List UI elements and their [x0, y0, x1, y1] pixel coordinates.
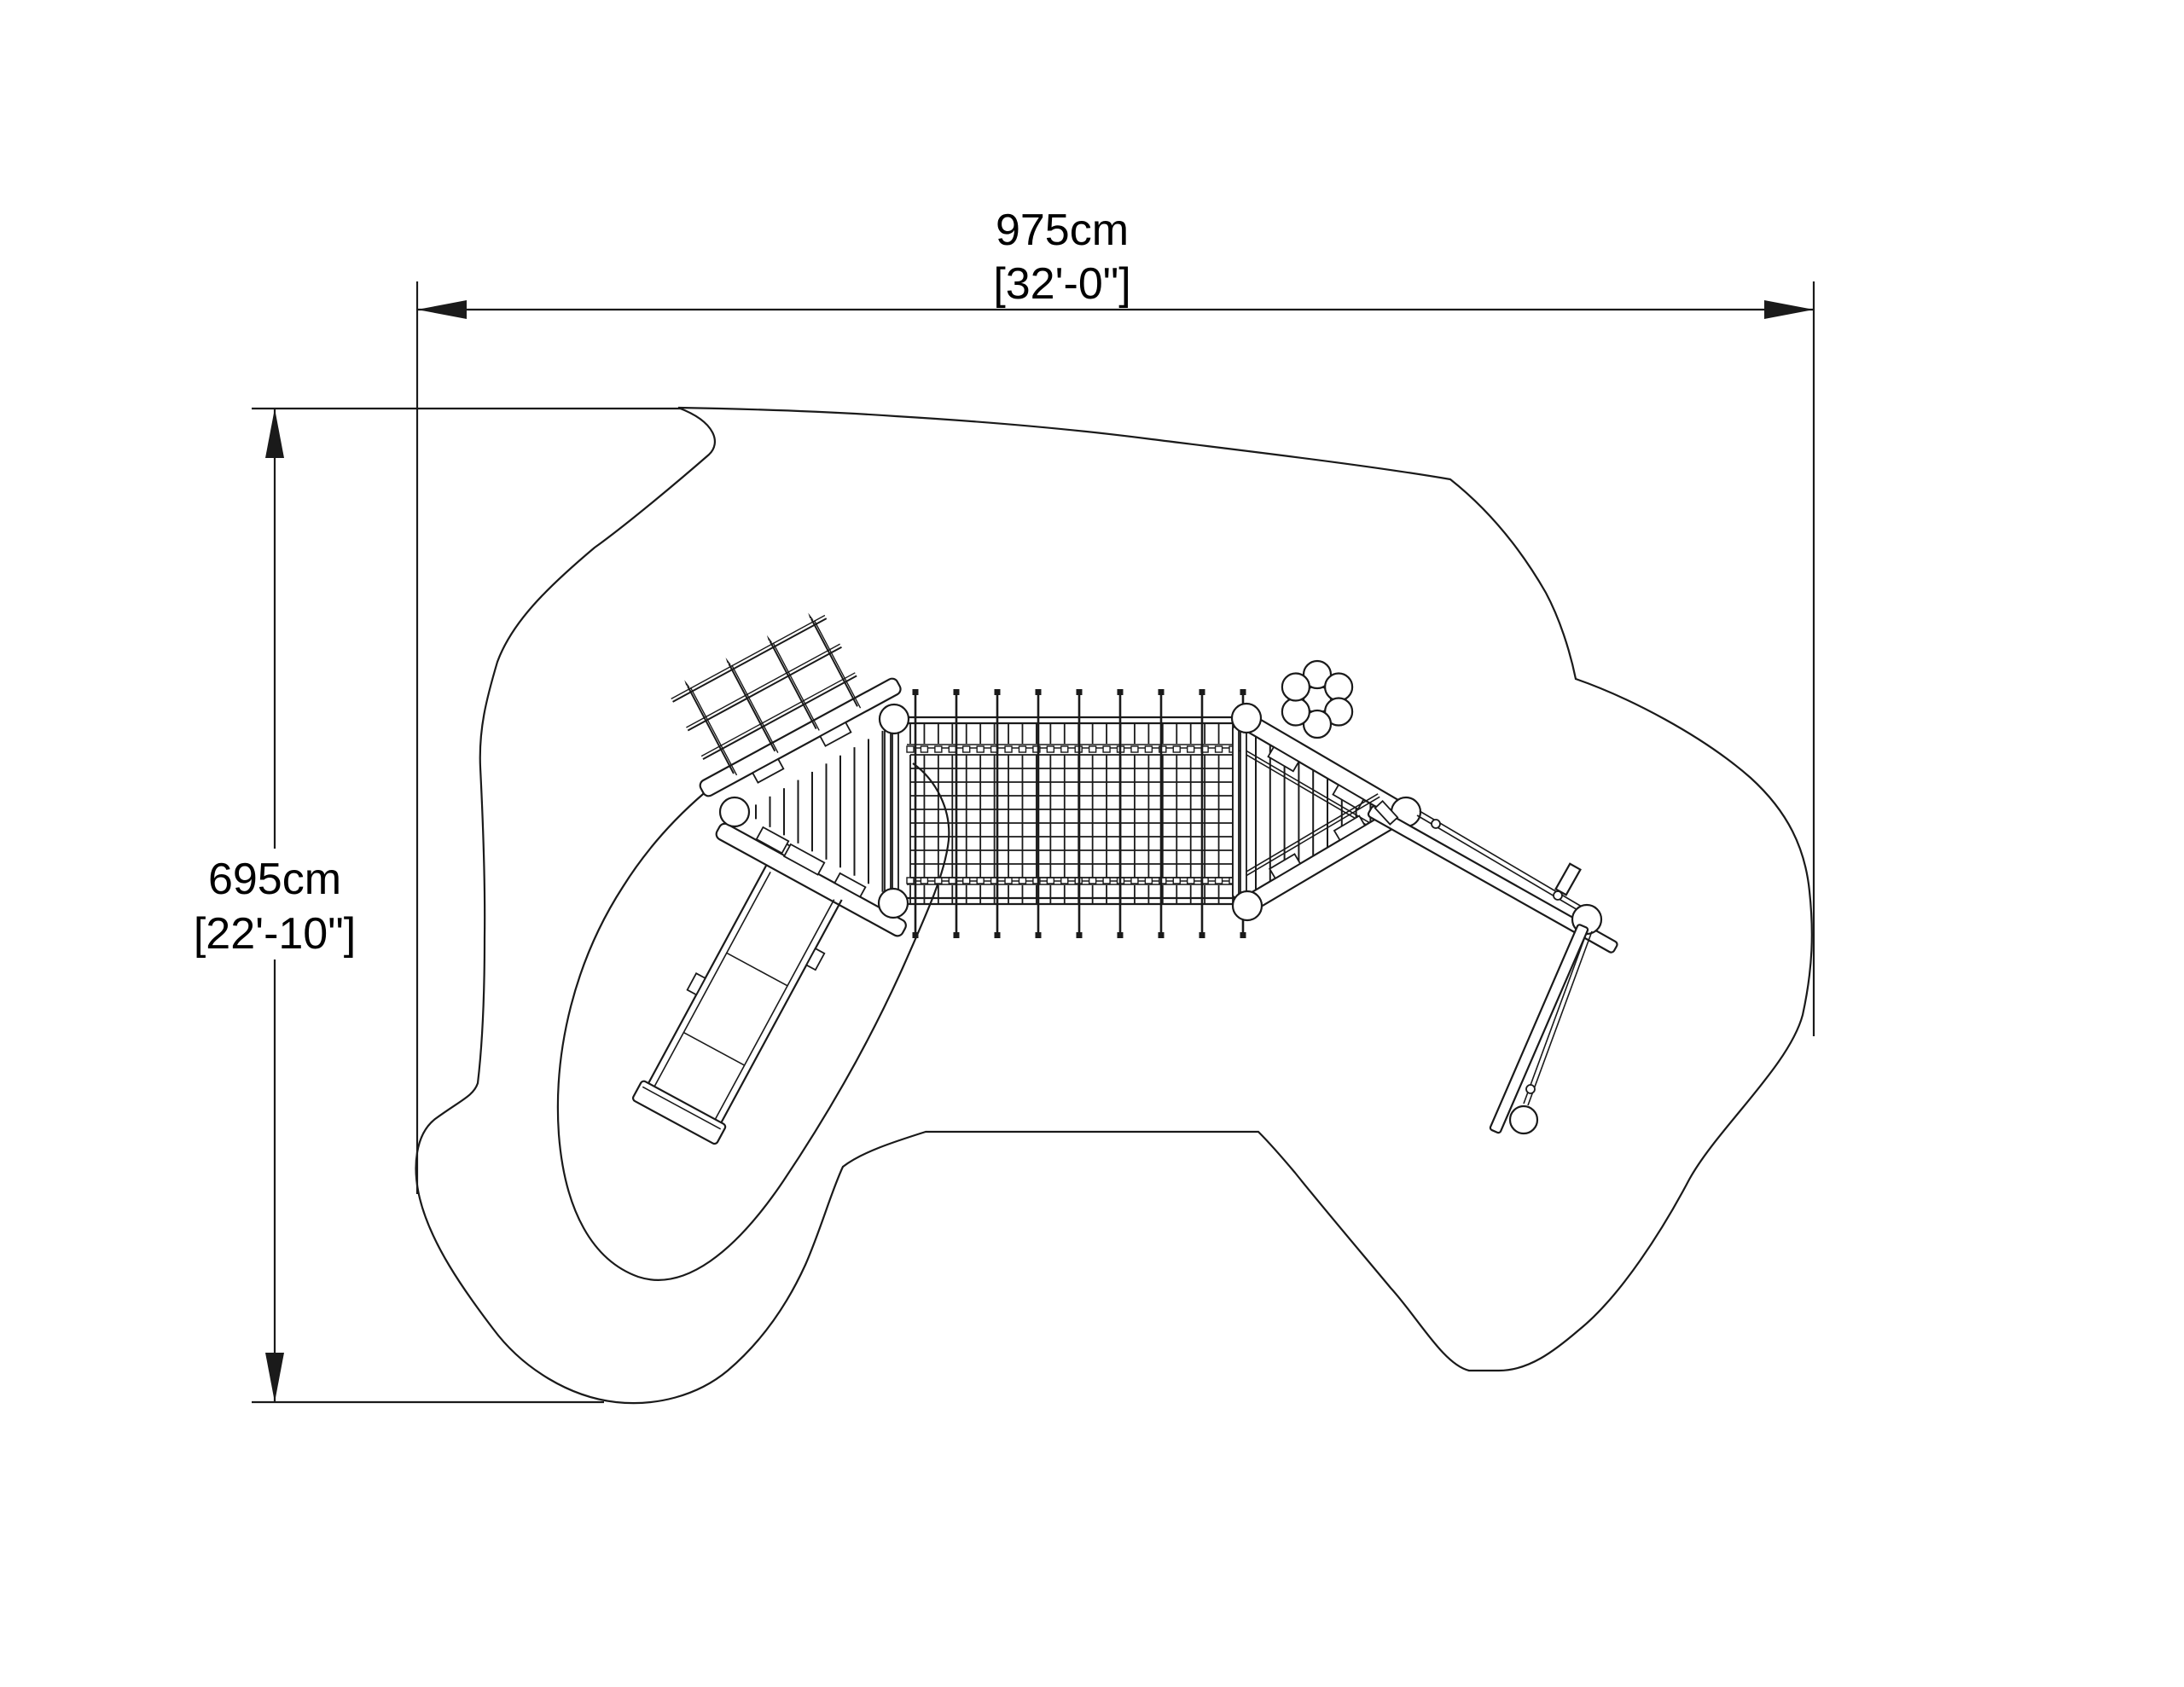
slide-section-joint — [727, 953, 787, 986]
dimension-top: 975cm [32'-0"] — [417, 206, 1814, 1194]
corner-post — [1233, 891, 1262, 920]
corner-post — [879, 889, 908, 918]
slide-section-joint — [683, 1033, 744, 1066]
step-block — [1556, 864, 1581, 895]
slide — [629, 855, 851, 1147]
plan-drawing: 975cm [32'-0"] 695cm [22'-10"] — [0, 0, 2184, 1687]
arrowhead-down — [265, 1353, 284, 1402]
deck-edge-board — [885, 728, 891, 896]
drawing-page: 975cm [32'-0"] 695cm [22'-10"] — [0, 0, 2184, 1687]
safety-surface-outline — [416, 408, 1812, 1403]
rope-lines — [913, 689, 1246, 938]
slide-exit-cap — [632, 1080, 727, 1145]
deck-edge-board — [1233, 727, 1239, 897]
dimension-left-metric: 695cm — [208, 855, 341, 904]
slide-support-tab — [806, 948, 824, 970]
arrowhead-left — [417, 300, 467, 319]
play-structure — [629, 613, 1622, 1147]
deck-edge-board — [1240, 727, 1246, 897]
corner-post — [880, 704, 909, 733]
deck-edge-board — [892, 728, 898, 896]
rail-ferrule — [1432, 820, 1440, 828]
rail-ferrule — [1526, 1085, 1535, 1093]
arrowhead-right — [1764, 300, 1814, 319]
dimension-left-imperial: [22'-10"] — [194, 909, 356, 959]
end-post — [1510, 1106, 1537, 1133]
balance-beam-assembly — [1368, 798, 1623, 1133]
corner-post — [720, 797, 749, 826]
stepper-flower — [1282, 661, 1352, 738]
arrowhead-up — [265, 409, 284, 458]
inclined-beam — [1490, 924, 1589, 1133]
left-triangle-deck — [698, 676, 915, 938]
dimension-top-imperial: [32'-0"] — [993, 259, 1130, 309]
dimension-left: 695cm [22'-10"] — [194, 409, 682, 1402]
corner-post — [1232, 704, 1261, 733]
handrail — [1524, 930, 1588, 1104]
dimension-top-metric: 975cm — [996, 206, 1129, 255]
slide-support-tab — [688, 973, 706, 994]
